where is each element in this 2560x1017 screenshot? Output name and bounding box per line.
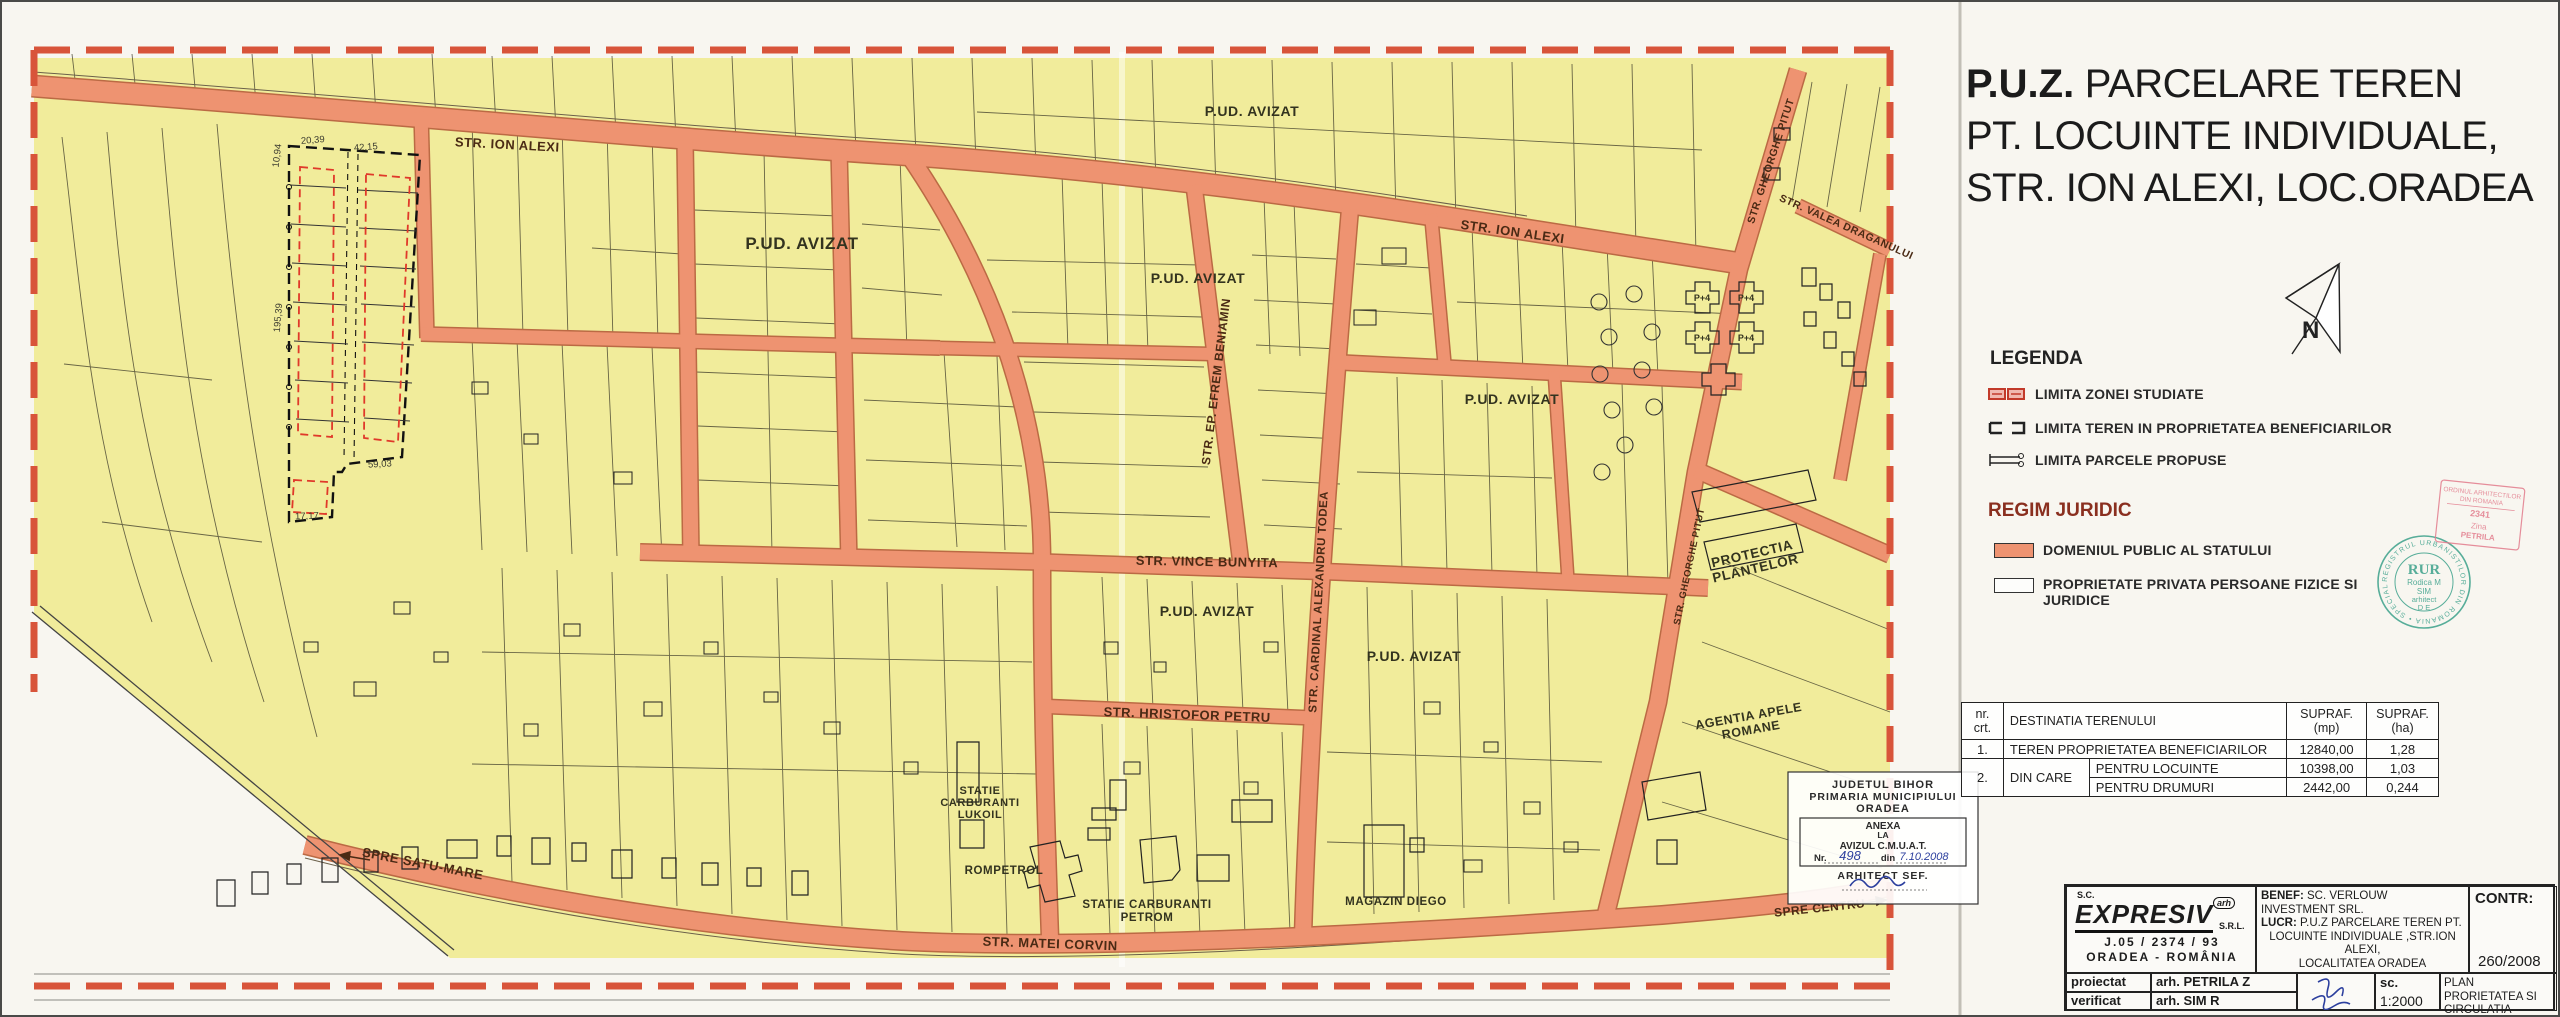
legend-label-teren-beneficiari: LIMITA TEREN IN PROPRIETATEA BENEFICIARI… xyxy=(2035,420,2392,436)
hdr-ha1: SUPRAF. xyxy=(2376,707,2429,721)
hdr-mp2: (mp) xyxy=(2314,721,2340,735)
stamp-arhitect-sef: ARHITECT SEF. xyxy=(1837,870,1928,882)
dim-5903: 59,03 xyxy=(368,458,392,470)
table-row: 1. TEREN PROPRIETATEA BENEFICIARILOR 128… xyxy=(1962,740,2439,759)
benef-label: BENEF: xyxy=(2261,890,2304,902)
lucr-value1: P.U.Z PARCELARE TEREN PT. xyxy=(2300,917,2462,929)
area-label-pud-1: P.UD. AVIZAT xyxy=(745,234,858,253)
oar-lastname: PETRILA xyxy=(2460,530,2495,543)
legend-item-zona-studiata: LIMITA ZONEI STUDIATE xyxy=(1988,386,2204,402)
stamp-handwritten-date: 7.10.2008 xyxy=(1900,851,1950,863)
header-destinatia: DESTINATIA TERENULUI xyxy=(2003,703,2286,740)
rur-category: D E xyxy=(2418,603,2431,612)
area-label-magazin-diego: MAGAZIN DIEGO xyxy=(1345,896,1447,908)
stamp-primaria: PRIMARIA MUNICIPIULUI xyxy=(1809,791,1956,803)
dim-4215: 42,15 xyxy=(354,141,378,154)
rur-name1: Rodica M xyxy=(2407,578,2441,587)
area-label-pud-4: P.UD. AVIZAT xyxy=(1465,391,1560,407)
title-line-3: STR. ION ALEXI, LOC.ORADEA xyxy=(1966,162,2560,214)
verificat-label-cell: verificat xyxy=(2066,992,2151,1011)
legend-heading: LEGENDA xyxy=(1990,348,2083,370)
petrom-line2: PETROM xyxy=(1121,912,1174,924)
map-yellow-area xyxy=(34,58,1890,958)
verificat-name: arh. SIM R xyxy=(2156,993,2220,1008)
lukoil-line2: CARBURANTI xyxy=(940,797,1019,809)
lucr-label: LUCR: xyxy=(2261,917,2297,929)
scale-value: 1:2000 xyxy=(2376,990,2439,1009)
regim-item-domeniul-public: DOMENIUL PUBLIC AL STATULUI xyxy=(1994,542,2272,558)
municipality-stamp: JUDETUL BIHOR PRIMARIA MUNICIPIULUI ORAD… xyxy=(1788,772,1978,904)
legend-symbol-parcele-propuse-icon xyxy=(1988,452,2026,468)
p4-label-4: P+4 xyxy=(1738,333,1754,343)
regim-label-public: DOMENIUL PUBLIC AL STATULUI xyxy=(2043,542,2272,558)
dim-2039: 20,39 xyxy=(301,134,325,147)
table-row: 2. DIN CARE PENTRU LOCUINTE 10398,00 1,0… xyxy=(1962,759,2439,778)
regim-privat-line2: JURIDICE xyxy=(2043,592,2110,608)
row2a-mp: 10398,00 xyxy=(2287,759,2367,778)
area-label-pud-6: P.UD. AVIZAT xyxy=(1367,648,1462,664)
dim-1717: 17,17 xyxy=(295,511,319,523)
verificat-name-cell: arh. SIM R xyxy=(2151,992,2297,1011)
row2-nr: 2. xyxy=(1962,759,2004,797)
title-puz: P.U.Z. xyxy=(1966,62,2074,106)
street-label-vince-bunyita: STR. VINCE BUNYITA xyxy=(1136,553,1279,570)
title-line-1: P.U.Z. PARCELARE TEREN xyxy=(1966,58,2560,110)
hdr-ha2: (ha) xyxy=(2391,721,2413,735)
page-title: P.U.Z. PARCELARE TEREN PT. LOCUINTE INDI… xyxy=(1966,58,2560,214)
header-suprafata-ha: SUPRAF.(ha) xyxy=(2367,703,2439,740)
plan-name-line2: CIRCULATIA TERENURILOR 4/U xyxy=(2444,1004,2553,1017)
regim-privat-line1: PROPRIETATE PRIVATA PERSOANE FIZICE SI xyxy=(2043,576,2358,592)
plan-name-cell: PLAN PRORIETATEA SI CIRCULATIA TERENURIL… xyxy=(2440,973,2557,1011)
title-line-2: PT. LOCUINTE INDIVIDUALE, xyxy=(1966,110,2560,162)
row1-ha: 1,28 xyxy=(2367,740,2439,759)
legend-label-zona-studiata: LIMITA ZONEI STUDIATE xyxy=(2035,386,2204,402)
row2b-sub: PENTRU DRUMURI xyxy=(2089,778,2286,797)
area-label-pud-5: P.UD. AVIZAT xyxy=(1160,603,1255,619)
stamp-din-label: din xyxy=(1881,853,1895,864)
oar-firstname: Zina xyxy=(2471,521,2488,532)
signatures-cell xyxy=(2297,973,2375,1011)
legend-symbol-teren-beneficiari-icon xyxy=(1988,420,2026,436)
oar-number: 2341 xyxy=(2470,508,2491,520)
scale-label: sc. xyxy=(2376,974,2439,990)
row2a-sub: PENTRU LOCUINTE xyxy=(2089,759,2286,778)
lucr-line3: LOCALITATEA ORADEA xyxy=(2261,958,2464,972)
regim-juridic-heading: REGIM JURIDIC xyxy=(1988,500,2132,522)
scan-fold-seam xyxy=(1119,52,1125,967)
petrom-line1: STATIE CARBURANTI xyxy=(1082,899,1211,911)
p4-label-2: P+4 xyxy=(1738,293,1754,303)
lucr-line1: LUCR: P.U.Z PARCELARE TEREN PT. xyxy=(2261,917,2464,931)
oar-stamp: ORDINUL ARHITECTILOR DIN ROMANIA 2341 Zi… xyxy=(2435,480,2525,550)
row1-destinatia: TEREN PROPRIETATEA BENEFICIARILOR xyxy=(2003,740,2286,759)
hdr-nr: nr. xyxy=(1976,707,1990,721)
regim-item-proprietate-privata: PROPRIETATE PRIVATA PERSOANE FIZICE SIJU… xyxy=(1994,576,2358,608)
lukoil-line3: LUKOIL xyxy=(958,809,1003,821)
row2a-ha: 1,03 xyxy=(2367,759,2439,778)
stamp-judetul-bihor: JUDETUL BIHOR xyxy=(1832,779,1934,791)
architect-signatures xyxy=(2298,974,2374,1010)
land-destination-table: nr.crt. DESTINATIA TERENULUI SUPRAF.(mp)… xyxy=(1961,702,2439,797)
north-arrow-label: N xyxy=(2302,317,2319,344)
hdr-dest: DESTINATIA TERENULUI xyxy=(2010,714,2156,728)
row2b-ha: 0,244 xyxy=(2367,778,2439,797)
contract-cell: CONTR: 260/2008 xyxy=(2469,886,2557,973)
table-header-row: nr.crt. DESTINATIA TERENULUI SUPRAF.(mp)… xyxy=(1962,703,2439,740)
legend-symbol-zona-studiata-icon xyxy=(1988,386,2026,402)
rur-acronym: RUR xyxy=(2408,562,2441,578)
hdr-crt: crt. xyxy=(1974,721,1991,735)
header-suprafata-mp: SUPRAF.(mp) xyxy=(2287,703,2367,740)
area-label-pud-2: P.UD. AVIZAT xyxy=(1205,103,1300,119)
contr-label: CONTR: xyxy=(2475,890,2533,907)
firm-reg-no: J.05 / 2374 / 93 xyxy=(2067,935,2257,949)
lukoil-line1: STATIE xyxy=(959,785,1000,797)
stamp-oradea: ORADEA xyxy=(1856,803,1910,815)
title-block: S.C. EXPRESIV arh S.R.L. J.05 / 2374 / 9… xyxy=(2064,884,2555,1011)
firm-arh-badge: arh xyxy=(2213,897,2235,909)
area-label-pud-3: P.UD. AVIZAT xyxy=(1151,270,1246,286)
stamp-nr-label: Nr. xyxy=(1814,853,1827,864)
legend-item-parcele-propuse: LIMITA PARCELE PROPUSE xyxy=(1988,452,2227,468)
proiectat-label-cell: proiectat xyxy=(2066,973,2151,992)
row2-din-care: DIN CARE xyxy=(2003,759,2089,797)
row2b-mp: 2442,00 xyxy=(2287,778,2367,797)
scale-cell: sc. 1:2000 xyxy=(2375,973,2440,1011)
north-arrow: N xyxy=(2286,264,2340,354)
stamp-handwritten-nr: 498 xyxy=(1839,848,1861,863)
title-line1-rest: PARCELARE TEREN xyxy=(2074,62,2462,106)
p4-label-1: P+4 xyxy=(1694,293,1710,303)
regim-swatch-public-icon xyxy=(1994,543,2034,558)
project-number: 260/2008 xyxy=(2478,953,2541,970)
row1-mp: 12840,00 xyxy=(2287,740,2367,759)
p4-label-3: P+4 xyxy=(1694,333,1710,343)
proiectat-name: arh. PETRILA Z xyxy=(2156,974,2250,989)
benef-line: BENEF: SC. VERLOUW INVESTMENT SRL. xyxy=(2261,890,2464,917)
lucr-line2: LOCUINTE INDIVIDUALE ,STR.ION ALEXI, xyxy=(2261,931,2464,958)
firm-city: ORADEA - ROMÂNIA xyxy=(2067,950,2257,964)
plan-name-line1: PLAN PRORIETATEA SI xyxy=(2444,977,2553,1004)
area-label-rompetrol: ROMPETROL xyxy=(965,865,1044,877)
regim-swatch-privat-icon xyxy=(1994,578,2034,593)
proiectat-name-cell: arh. PETRILA Z xyxy=(2151,973,2297,992)
header-nr-crt: nr.crt. xyxy=(1962,703,2004,740)
firm-logo: EXPRESIV xyxy=(2075,899,2213,933)
scanned-plan-sheet: STR. ION ALEXI STR. ION ALEXI STR. VINCE… xyxy=(0,0,2560,1017)
stamp-la: LA xyxy=(1877,830,1888,840)
legend-item-teren-beneficiari: LIMITA TEREN IN PROPRIETATEA BENEFICIARI… xyxy=(1988,420,2392,436)
firm-logo-cell: S.C. EXPRESIV arh S.R.L. J.05 / 2374 / 9… xyxy=(2066,886,2256,973)
firm-srl: S.R.L. xyxy=(2219,921,2245,931)
hdr-mp1: SUPRAF. xyxy=(2300,707,2353,721)
legend-label-parcele-propuse: LIMITA PARCELE PROPUSE xyxy=(2035,452,2227,468)
regim-label-privat: PROPRIETATE PRIVATA PERSOANE FIZICE SIJU… xyxy=(2043,576,2358,608)
beneficiary-cell: BENEF: SC. VERLOUW INVESTMENT SRL. LUCR:… xyxy=(2256,886,2469,973)
row1-nr: 1. xyxy=(1962,740,2004,759)
